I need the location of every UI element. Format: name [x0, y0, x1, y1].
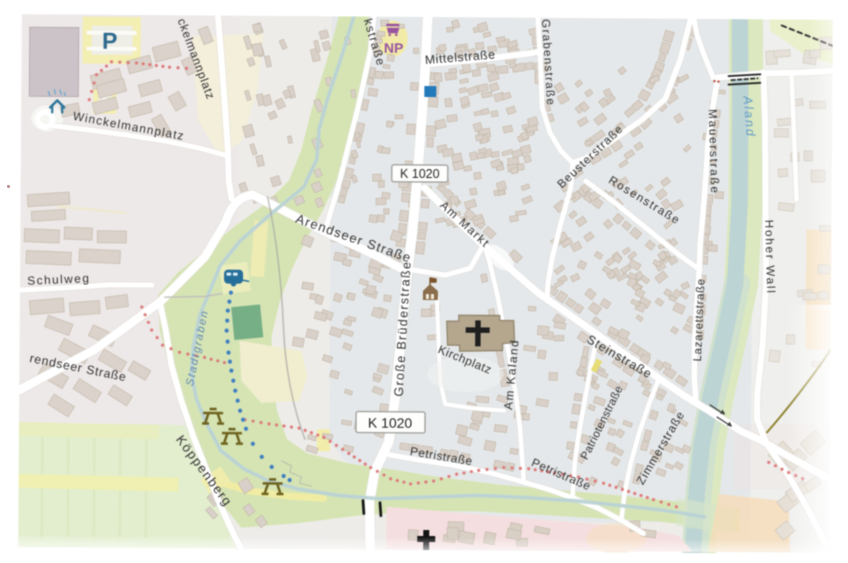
svg-text:Hoher Wall: Hoher Wall	[762, 220, 777, 295]
svg-text:K 1020: K 1020	[368, 415, 413, 431]
svg-text:Mauerstraße: Mauerstraße	[706, 109, 721, 195]
svg-text:K 1020: K 1020	[400, 167, 440, 181]
svg-text:Schulweg: Schulweg	[27, 271, 91, 288]
svg-text:P: P	[102, 28, 118, 54]
svg-text:NP: NP	[384, 40, 404, 56]
